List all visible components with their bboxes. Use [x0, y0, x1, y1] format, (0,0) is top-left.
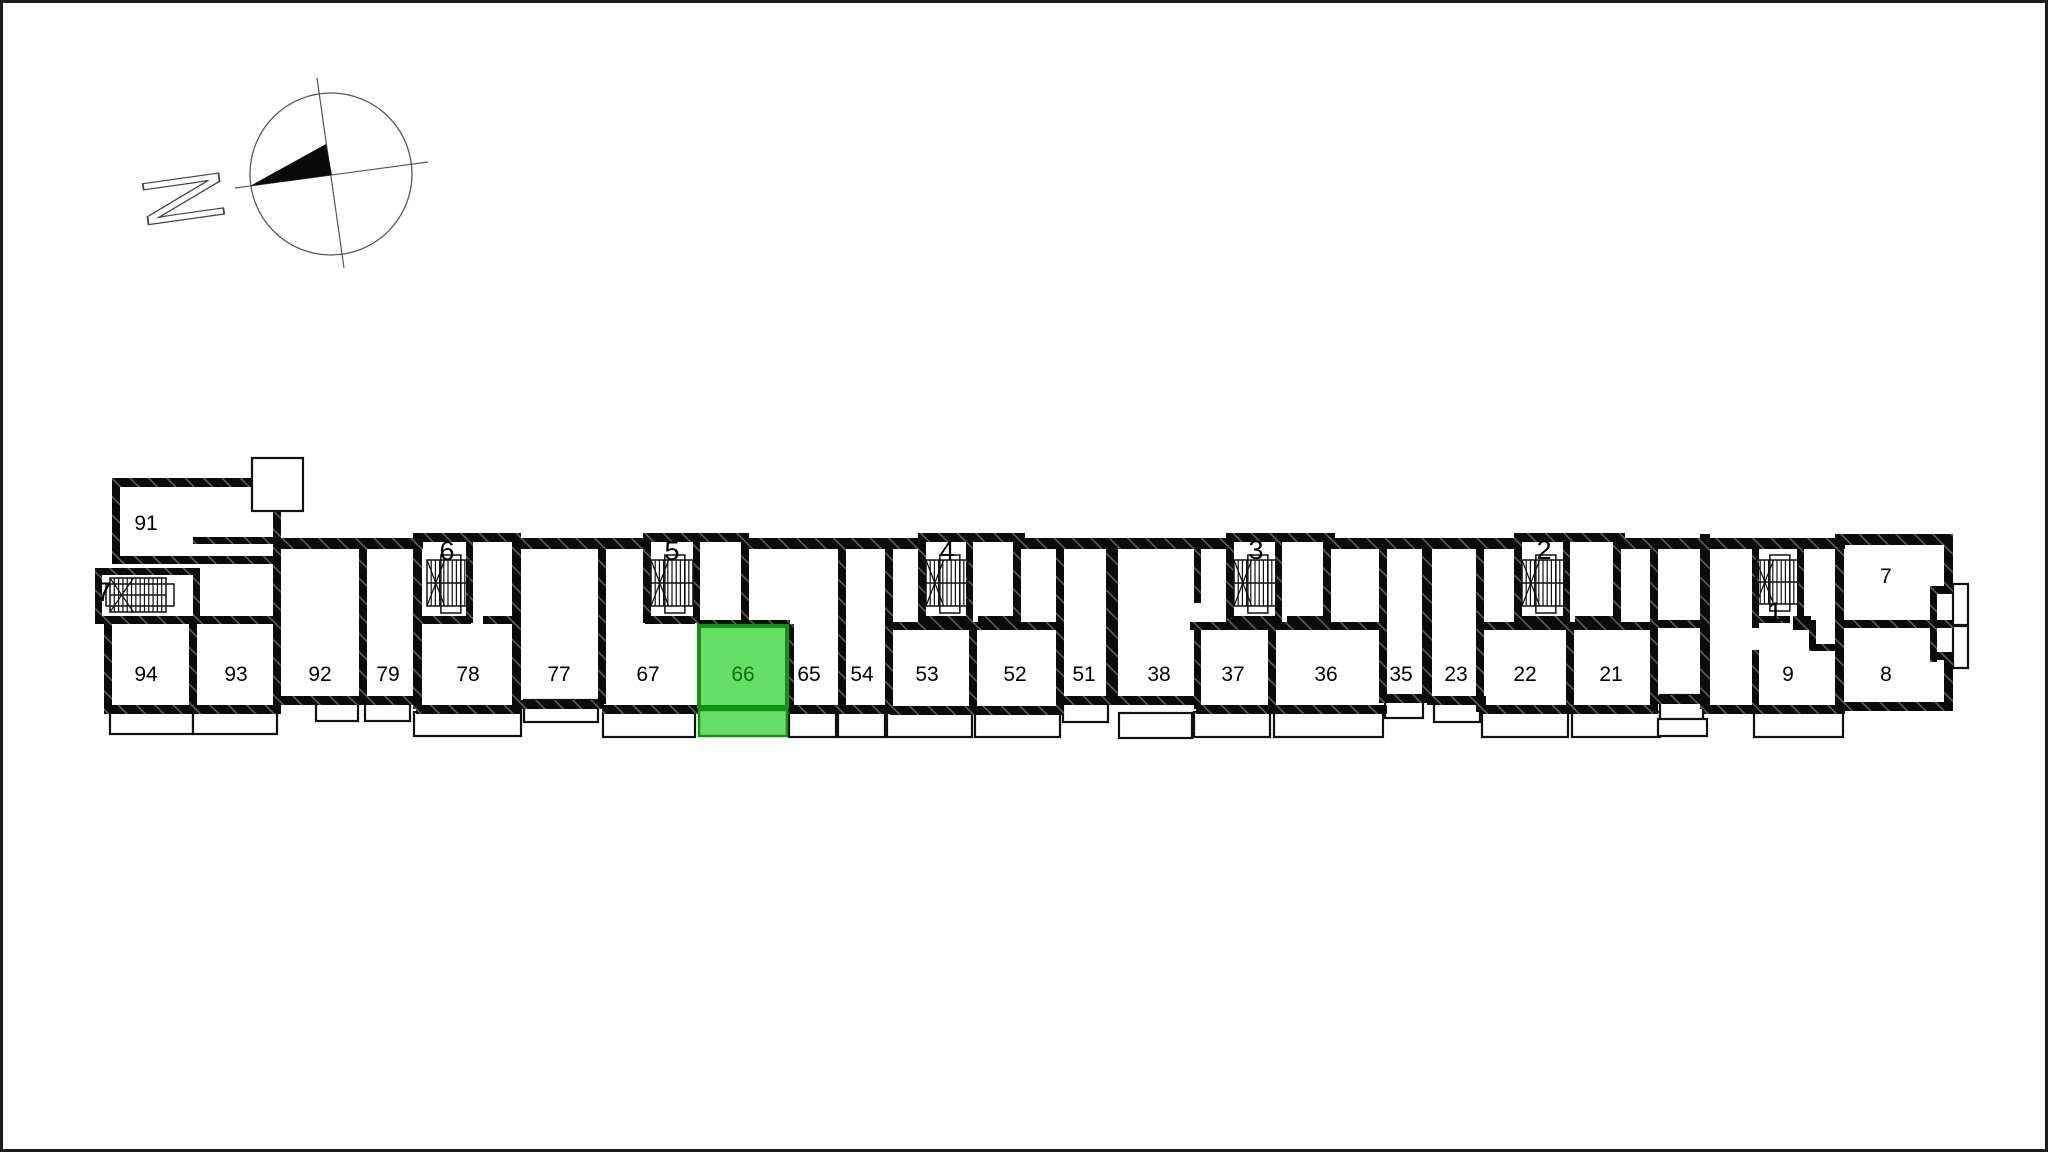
compass-letter: N	[119, 164, 249, 234]
wall	[1752, 650, 1759, 709]
stairwell-label-7: 7	[96, 577, 111, 607]
unit-label-54: 54	[850, 663, 874, 686]
wall	[1613, 533, 1621, 623]
wall	[885, 622, 975, 630]
wall	[1700, 534, 1710, 709]
compass: N	[119, 78, 428, 268]
wall	[838, 538, 846, 709]
wall	[1056, 538, 1064, 709]
unit-label-92: 92	[308, 663, 331, 686]
unit-label-94: 94	[134, 663, 158, 686]
unit-label-37: 37	[1221, 663, 1244, 686]
unit-label-77: 77	[547, 663, 570, 686]
wall	[419, 533, 517, 542]
balcony	[1119, 713, 1192, 738]
wall	[193, 574, 200, 620]
floor-plan: N 76543219194939279787767666554535251383…	[0, 0, 2048, 1152]
unit-label-66: 66	[731, 663, 754, 686]
wall	[741, 533, 749, 623]
wall	[693, 541, 700, 623]
unit-label-79: 79	[376, 663, 399, 686]
wall	[1287, 616, 1325, 624]
wall	[1379, 538, 1387, 703]
wall	[1323, 533, 1331, 623]
balcony	[838, 712, 885, 737]
wall	[1013, 533, 1021, 623]
wall	[520, 700, 604, 709]
unit-label-22: 22	[1513, 663, 1536, 686]
wall	[1194, 538, 1201, 603]
wall	[1268, 622, 1276, 709]
wall	[1226, 533, 1234, 623]
balcony	[789, 712, 836, 737]
wall	[1843, 702, 1953, 711]
unit-label-36: 36	[1314, 663, 1337, 686]
wall	[748, 538, 922, 549]
wall	[1110, 696, 1198, 705]
wall	[112, 478, 120, 563]
balcony	[887, 713, 972, 737]
wall	[1793, 616, 1811, 630]
unit-label-93: 93	[224, 663, 247, 686]
wall	[1476, 622, 1566, 630]
wall	[359, 538, 367, 700]
wall	[1228, 616, 1277, 624]
unit-label-23: 23	[1444, 663, 1467, 686]
wall	[598, 538, 606, 704]
highlighted-unit-66-balcony	[699, 710, 787, 736]
annex-outline	[252, 458, 303, 511]
unit-label-35: 35	[1389, 663, 1412, 686]
wall	[643, 533, 749, 542]
wall	[966, 541, 973, 623]
wall	[1514, 533, 1522, 623]
unit-label-8: 8	[1880, 663, 1892, 686]
unit-label-38: 38	[1147, 663, 1170, 686]
wall	[1658, 620, 1706, 628]
unit-label-53: 53	[915, 663, 938, 686]
balcony	[1658, 719, 1707, 736]
unit-label-91: 91	[134, 512, 157, 535]
wall	[1650, 538, 1658, 712]
wall	[281, 696, 420, 705]
stairwell-label-4: 4	[939, 536, 954, 566]
balcony	[1572, 712, 1660, 737]
wall	[483, 616, 521, 624]
unit-label-78: 78	[456, 663, 479, 686]
wall	[1226, 533, 1335, 542]
balcony	[603, 712, 695, 737]
wall	[643, 533, 651, 623]
balcony	[1482, 712, 1568, 737]
unit-label-7: 7	[1880, 565, 1892, 588]
wall	[112, 556, 281, 564]
unit-label-9: 9	[1782, 663, 1794, 686]
wall	[1704, 705, 1845, 714]
stairwell-label-6: 6	[439, 536, 454, 566]
wall	[104, 616, 112, 711]
floor-plan-page: N 76543219194939279787767666554535251383…	[0, 0, 2048, 1152]
wall	[1106, 538, 1118, 703]
wall	[95, 568, 200, 575]
wall	[416, 705, 522, 714]
wall	[413, 616, 471, 624]
unit-label-65: 65	[797, 663, 820, 686]
wall	[1566, 622, 1658, 630]
balcony	[975, 713, 1060, 737]
wall	[277, 538, 423, 549]
wall	[1944, 534, 1953, 592]
wall	[969, 622, 977, 709]
unit-label-21: 21	[1599, 663, 1622, 686]
wall	[273, 538, 281, 705]
wall	[645, 616, 695, 624]
wall	[1566, 622, 1574, 709]
balcony	[1754, 712, 1843, 737]
wall	[189, 616, 197, 711]
wall	[95, 616, 281, 624]
wall	[193, 537, 281, 544]
stairwell-label-3: 3	[1248, 535, 1263, 565]
unit-label-52: 52	[1003, 663, 1026, 686]
unit-label-51: 51	[1072, 663, 1095, 686]
stairwell-label-1: 1	[1767, 597, 1782, 627]
wall	[975, 622, 1064, 630]
balcony	[414, 712, 521, 736]
balcony	[1274, 712, 1383, 737]
wall	[1837, 534, 1953, 545]
unit-label-67: 67	[636, 663, 659, 686]
wall	[1514, 533, 1625, 542]
north-arrow-needle	[250, 144, 332, 186]
balcony	[1953, 626, 1968, 668]
wall	[918, 533, 1025, 542]
wall	[517, 538, 647, 549]
wall	[1196, 705, 1387, 714]
wall	[1944, 652, 1953, 711]
staircase-icon	[106, 578, 174, 612]
balcony	[1953, 584, 1968, 625]
wall	[1194, 622, 1201, 709]
wall	[1930, 586, 1937, 626]
stairwell-label-5: 5	[664, 536, 679, 566]
wall	[1422, 538, 1432, 698]
stairwell-label-2: 2	[1536, 535, 1551, 565]
balcony	[1194, 712, 1270, 737]
wall	[918, 533, 926, 623]
